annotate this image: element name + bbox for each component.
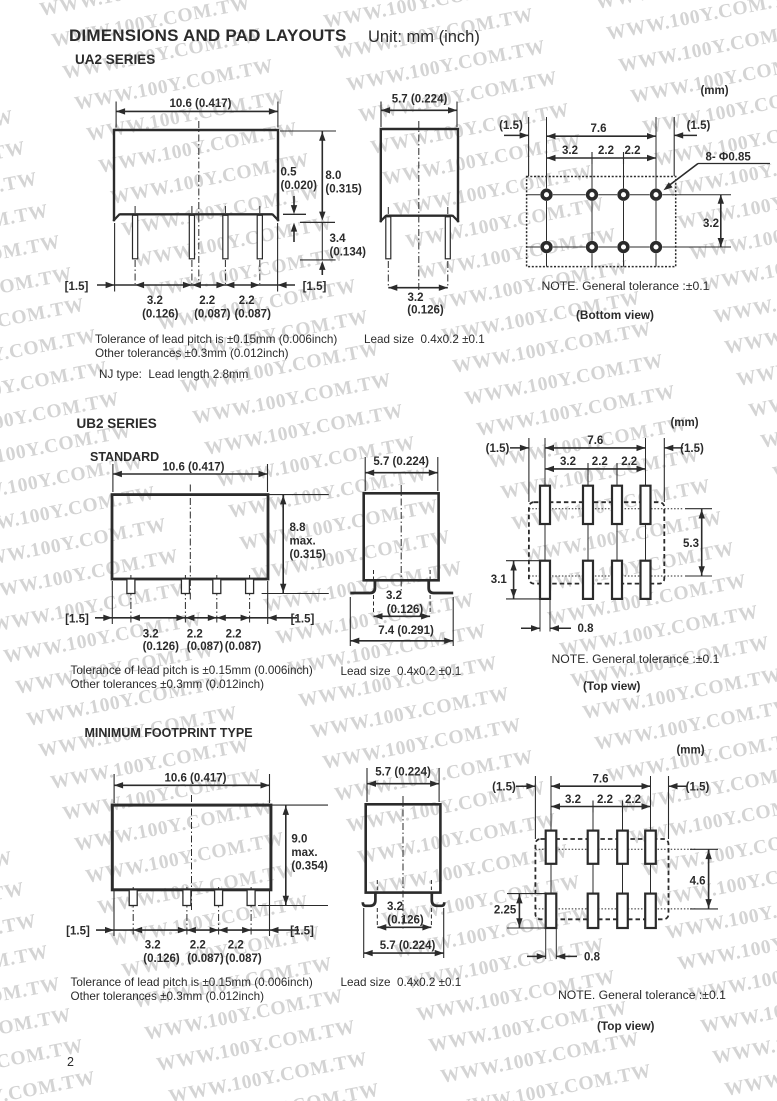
svg-text:2.2: 2.2: [625, 794, 641, 806]
svg-text:[1.5]: [1.5]: [290, 926, 314, 938]
svg-text:(0.126): (0.126): [407, 305, 444, 317]
svg-text:2.25: 2.25: [494, 905, 517, 917]
svg-text:2.2: 2.2: [187, 628, 203, 640]
svg-text:(0.126): (0.126): [142, 309, 179, 321]
svg-text:5.7 (0.224): 5.7 (0.224): [392, 93, 448, 105]
svg-text:(0.126): (0.126): [143, 641, 180, 653]
svg-text:8.0: 8.0: [325, 170, 341, 182]
svg-text:(0.087): (0.087): [187, 953, 224, 965]
svg-text:2.2: 2.2: [621, 456, 637, 468]
svg-text:2.2: 2.2: [199, 295, 215, 307]
svg-text:(1.5): (1.5): [492, 782, 516, 794]
svg-text:(0.087): (0.087): [225, 641, 262, 653]
svg-text:(0.087): (0.087): [187, 641, 224, 653]
svg-text:3.2: 3.2: [562, 145, 578, 157]
svg-text:5.3: 5.3: [683, 538, 699, 550]
svg-text:2.2: 2.2: [228, 940, 244, 952]
svg-text:(0.087): (0.087): [194, 309, 231, 321]
svg-text:7.4 (0.291): 7.4 (0.291): [378, 625, 434, 637]
svg-text:5.7 (0.224): 5.7 (0.224): [380, 940, 436, 952]
svg-text:8.8: 8.8: [290, 522, 307, 534]
svg-text:(0.087): (0.087): [234, 309, 271, 321]
svg-text:2.2: 2.2: [597, 794, 613, 806]
svg-text:(0.134): (0.134): [330, 247, 367, 259]
svg-text:3.1: 3.1: [491, 574, 508, 586]
svg-text:2.2: 2.2: [239, 295, 255, 307]
svg-text:(0.315): (0.315): [325, 184, 362, 196]
svg-text:[1.5]: [1.5]: [66, 926, 90, 938]
svg-text:7.6: 7.6: [591, 123, 607, 135]
svg-text:0.8: 0.8: [584, 952, 601, 964]
svg-text:(0.126): (0.126): [387, 915, 424, 927]
svg-text:3.2: 3.2: [386, 590, 402, 602]
svg-text:(1.5): (1.5): [499, 120, 523, 132]
svg-text:(1.5): (1.5): [687, 120, 711, 132]
svg-text:3.2: 3.2: [408, 292, 424, 304]
svg-text:max.: max.: [290, 536, 316, 548]
svg-text:2.2: 2.2: [226, 628, 242, 640]
svg-text:3.2: 3.2: [565, 794, 581, 806]
svg-text:(0.126): (0.126): [143, 953, 180, 965]
svg-text:3.2: 3.2: [387, 901, 403, 913]
svg-text:5.7 (0.224): 5.7 (0.224): [375, 767, 431, 779]
svg-text:(0.315): (0.315): [290, 549, 327, 561]
svg-text:(1.5): (1.5): [486, 443, 510, 455]
svg-text:(1.5): (1.5): [686, 782, 710, 794]
svg-text:10.6 (0.417): 10.6 (0.417): [164, 773, 226, 785]
svg-text:(0.087): (0.087): [225, 953, 262, 965]
svg-text:3.4: 3.4: [330, 233, 347, 245]
svg-text:3.2: 3.2: [147, 295, 163, 307]
svg-text:0.8: 0.8: [578, 623, 595, 635]
svg-text:WWW.100Y.COM.TW: WWW.100Y.COM.TW: [0, 1068, 97, 1101]
svg-text:(mm): (mm): [670, 417, 698, 429]
svg-text:5.7 (0.224): 5.7 (0.224): [373, 456, 429, 468]
svg-text:2.2: 2.2: [625, 145, 641, 157]
svg-text:(mm): (mm): [676, 745, 704, 757]
svg-text:(0.020): (0.020): [281, 180, 318, 192]
svg-text:3.2: 3.2: [560, 456, 576, 468]
svg-text:3.2: 3.2: [145, 940, 161, 952]
svg-text:2.2: 2.2: [598, 145, 614, 157]
svg-text:(0.126): (0.126): [387, 604, 424, 616]
svg-text:3.2: 3.2: [703, 218, 719, 230]
svg-text:7.6: 7.6: [593, 773, 609, 785]
svg-text:[1.5]: [1.5]: [65, 613, 89, 625]
svg-text:2.2: 2.2: [190, 940, 206, 952]
svg-text:[1.5]: [1.5]: [65, 281, 89, 293]
svg-text:10.6 (0.417): 10.6 (0.417): [169, 98, 231, 110]
svg-text:(0.354): (0.354): [291, 861, 328, 873]
svg-text:[1.5]: [1.5]: [303, 281, 327, 293]
svg-text:max.: max.: [291, 847, 317, 859]
svg-text:7.6: 7.6: [587, 435, 603, 447]
svg-text:8- Φ0.85: 8- Φ0.85: [706, 151, 752, 163]
svg-text:[1.5]: [1.5]: [291, 613, 315, 625]
svg-text:2.2: 2.2: [592, 456, 608, 468]
svg-text:4.6: 4.6: [690, 876, 706, 888]
svg-text:9.0: 9.0: [291, 834, 307, 846]
svg-text:0.5: 0.5: [281, 167, 298, 179]
svg-text:10.6 (0.417): 10.6 (0.417): [162, 461, 224, 473]
svg-text:(1.5): (1.5): [680, 443, 704, 455]
svg-text:(mm): (mm): [700, 85, 728, 97]
svg-text:3.2: 3.2: [143, 628, 159, 640]
